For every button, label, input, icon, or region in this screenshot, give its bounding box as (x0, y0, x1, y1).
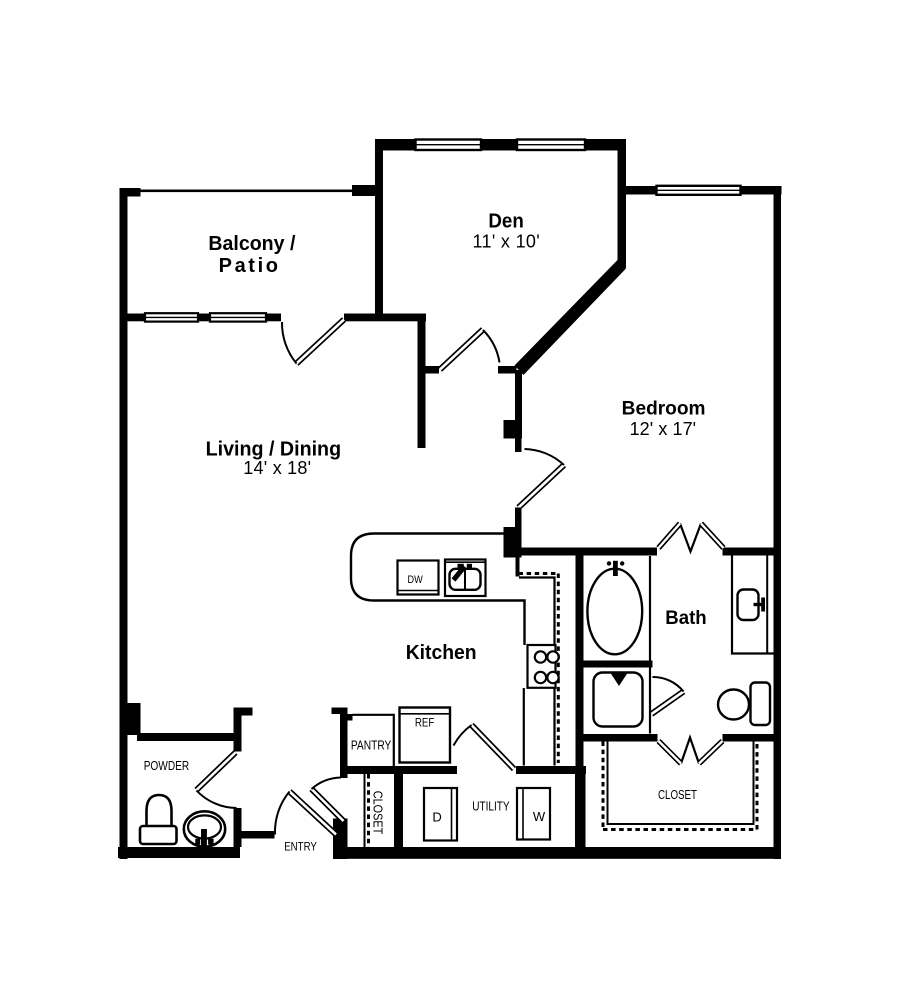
svg-text:W: W (533, 809, 546, 824)
svg-text:D: D (432, 810, 441, 825)
svg-text:REF: REF (415, 718, 435, 730)
svg-text:14' x 18': 14' x 18' (243, 458, 311, 478)
svg-text:Bath: Bath (665, 608, 706, 629)
svg-text:UTILITY: UTILITY (472, 800, 510, 814)
svg-text:CLOSET: CLOSET (658, 788, 697, 802)
svg-text:ENTRY: ENTRY (284, 842, 317, 854)
svg-text:Patio: Patio (219, 255, 278, 277)
svg-text:Den: Den (488, 211, 523, 233)
svg-text:DW: DW (408, 574, 424, 586)
svg-text:Kitchen: Kitchen (406, 642, 477, 664)
svg-text:12' x 17': 12' x 17' (630, 419, 697, 439)
svg-text:11' x 10': 11' x 10' (473, 232, 540, 252)
svg-text:CLOSET: CLOSET (370, 791, 384, 835)
svg-text:Bedroom: Bedroom (622, 399, 706, 420)
svg-text:PANTRY: PANTRY (351, 738, 392, 753)
svg-text:Balcony /: Balcony / (208, 233, 295, 255)
svg-text:POWDER: POWDER (144, 758, 190, 773)
svg-text:Living / Dining: Living / Dining (206, 438, 342, 460)
